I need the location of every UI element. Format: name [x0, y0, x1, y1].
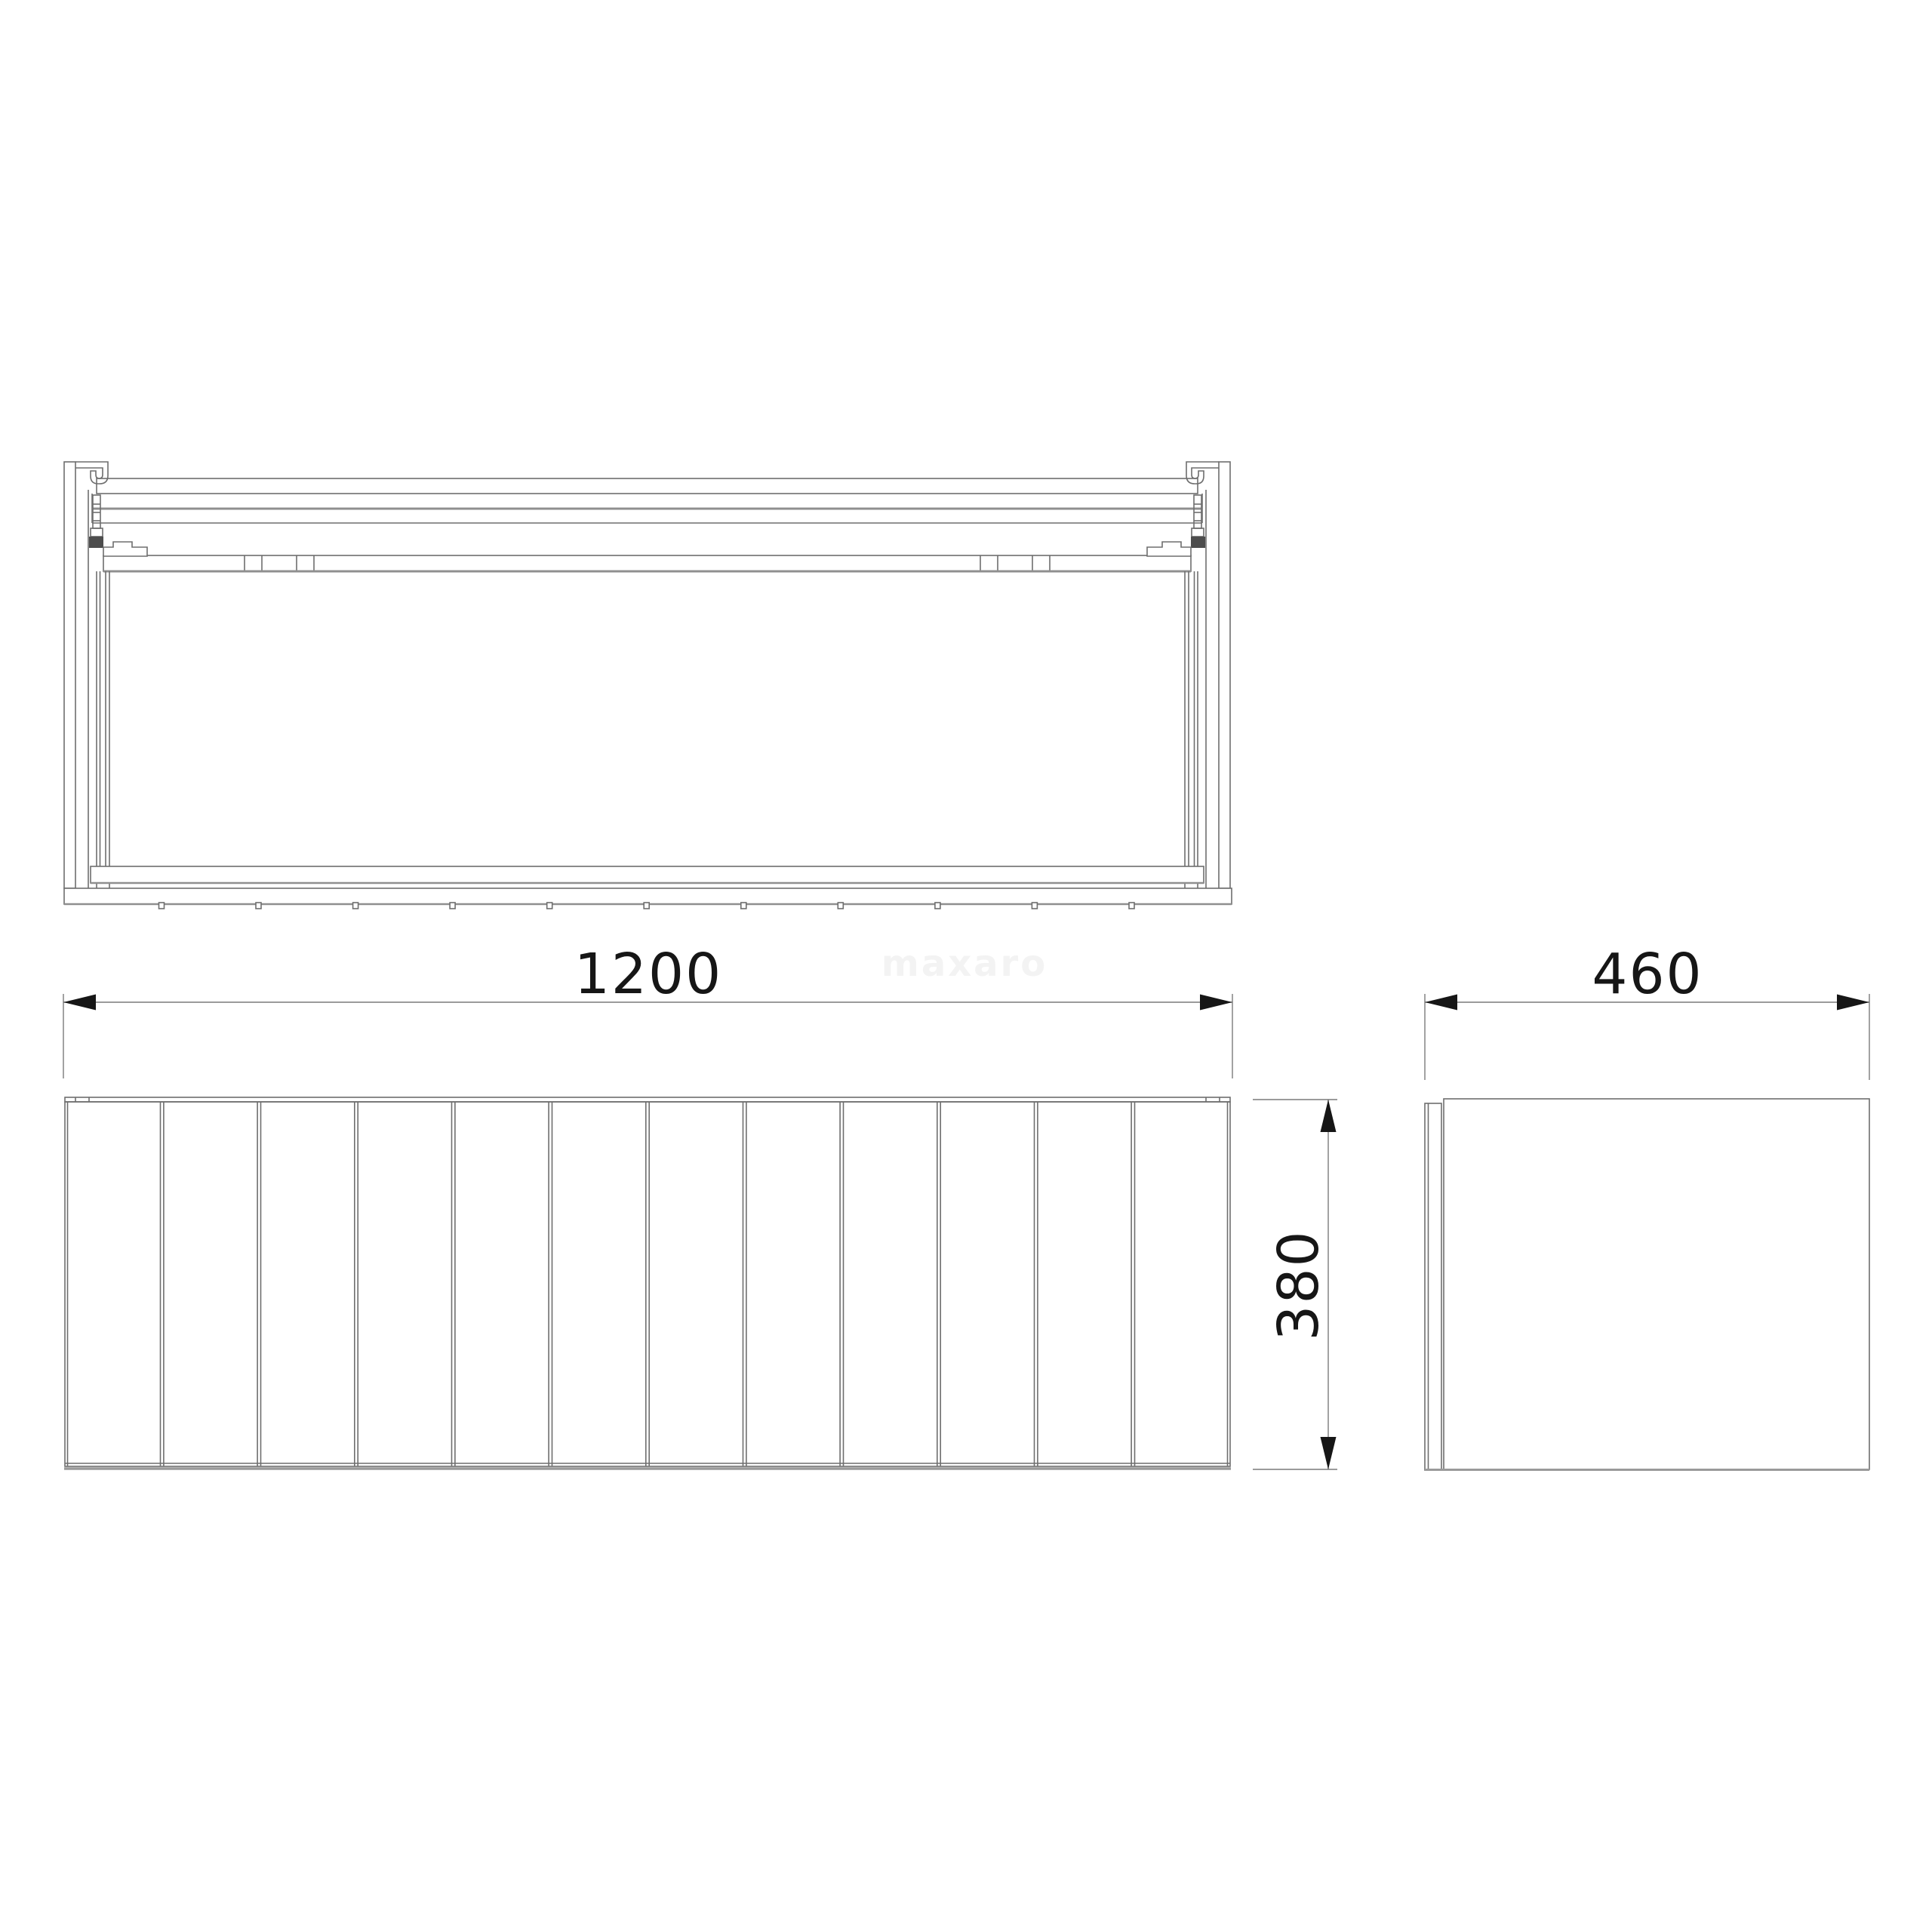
arrowhead-up-icon: [1321, 1100, 1337, 1132]
wall-hook-left-icon: [75, 462, 108, 484]
drawer-back-band: [103, 555, 1191, 571]
height-dimension-label: 380: [1266, 1229, 1331, 1340]
top-left-side-panel: [64, 462, 75, 888]
front-view: [64, 1097, 1231, 1469]
front-top-edge-strip: [65, 1097, 1230, 1102]
side-front-panel-strip: [1425, 1103, 1441, 1470]
slide-clip-left: [89, 495, 103, 548]
arrowhead-right-icon: [1200, 995, 1232, 1011]
slide-clip-right: [1191, 495, 1205, 548]
side-view: [1425, 1099, 1869, 1470]
front-top-edge-ticks: [75, 1097, 1220, 1102]
clip-block-left: [89, 537, 103, 548]
dimension-depth: 460: [1425, 942, 1869, 1080]
clip-block-right: [1191, 537, 1205, 548]
arrowhead-left-icon: [63, 995, 96, 1011]
watermark-logo: maxaro: [881, 943, 1048, 985]
width-dimension-label: 1200: [574, 942, 722, 1007]
front-slat-area: [65, 1102, 1230, 1466]
front-rail-band: [91, 866, 1204, 883]
top-view: [64, 462, 1232, 909]
dimension-width: 1200: [63, 942, 1232, 1078]
drawer-side-right: [1185, 571, 1198, 888]
arrowhead-right-icon: [1837, 995, 1869, 1011]
back-rail-band: [97, 478, 1198, 494]
arrowhead-left-icon: [1425, 995, 1457, 1011]
corner-bracket-right: [1147, 542, 1191, 556]
wall-hook-right-icon: [1186, 462, 1219, 484]
top-right-side-panel: [1219, 462, 1230, 888]
arrowhead-down-icon: [1321, 1437, 1337, 1469]
dimension-height: 380: [1253, 1100, 1337, 1469]
drawing-canvas: 1200 460 380 maxaro: [0, 0, 1932, 1932]
drawer-side-left: [97, 571, 109, 888]
depth-dimension-label: 460: [1592, 942, 1703, 1007]
front-panel-plan-strip: [64, 888, 1232, 904]
corner-bracket-left: [103, 542, 147, 556]
dimensions: 1200 460 380: [63, 942, 1869, 1469]
front-slat-dividers: [161, 1102, 1135, 1466]
side-body-panel: [1444, 1099, 1869, 1469]
